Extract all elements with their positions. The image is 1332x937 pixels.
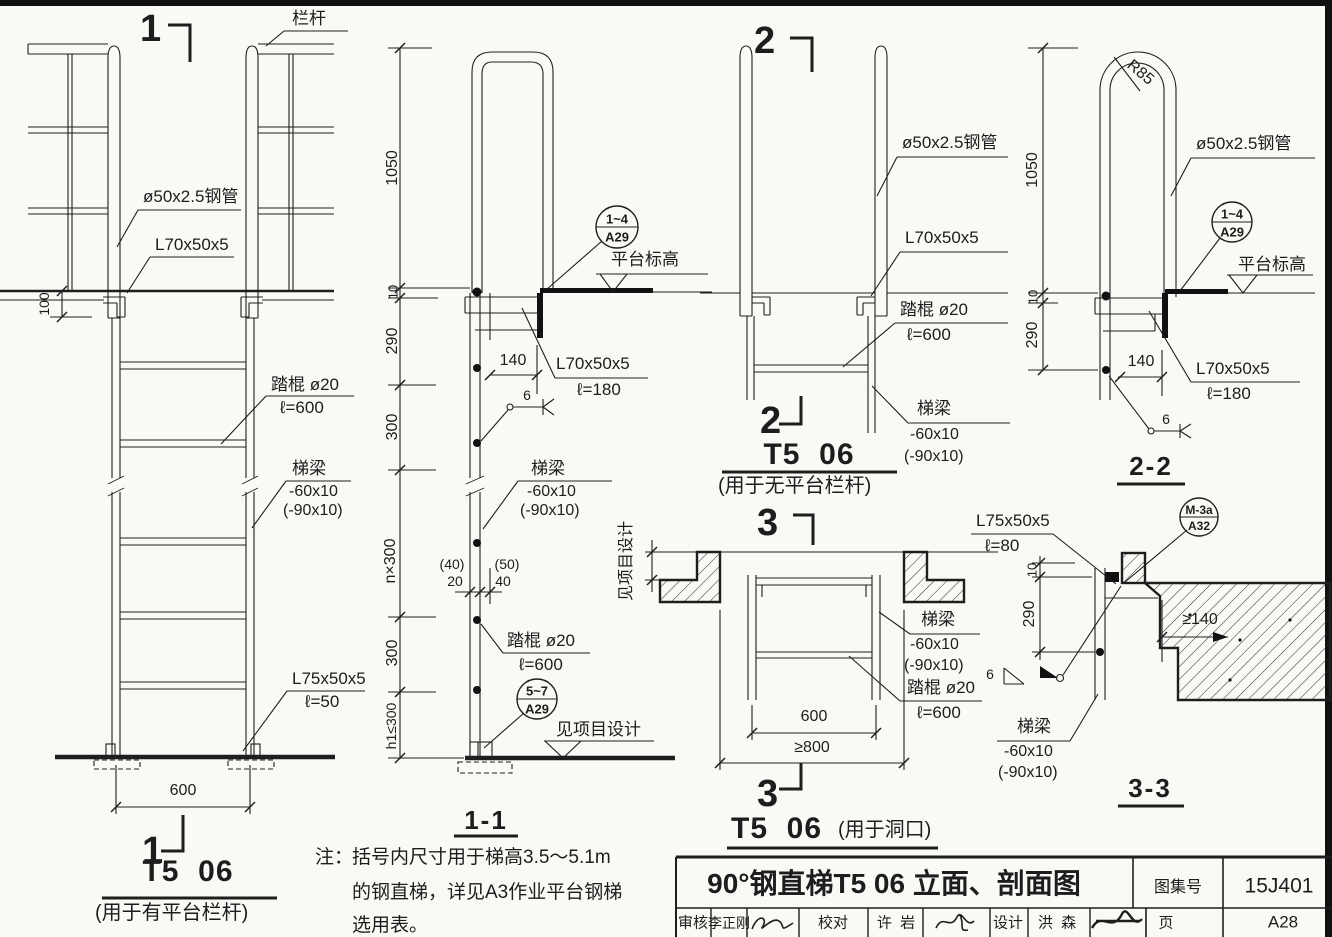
detail-bubble-sheet: A29 — [525, 703, 549, 716]
dim-290: 290 — [385, 328, 401, 355]
checker-signature — [936, 915, 974, 931]
section-marker-3-top: 3 — [757, 504, 778, 542]
platform-level-label: 平台标高 — [611, 251, 679, 268]
stringer-size: -60x10 — [910, 637, 959, 653]
angle-label: L70x50x5 — [155, 236, 229, 253]
sec3-subtitle: (用于洞口) — [838, 820, 931, 840]
weld-size: 6 — [523, 388, 531, 402]
dim-1050: 1050 — [385, 150, 401, 186]
stringer-size: -60x10 — [1004, 744, 1053, 760]
stringer-size: -60x10 — [527, 484, 576, 500]
section-marker-3-bottom: 3 — [757, 775, 778, 813]
elevation-2-linework — [700, 38, 1010, 472]
section-marker-2-top: 2 — [754, 22, 775, 60]
railing-label: 栏杆 — [292, 10, 326, 27]
rung-length: ℓ=600 — [907, 326, 951, 343]
dim-600: 600 — [801, 709, 828, 725]
pipe-label: ø50x2.5钢管 — [902, 134, 997, 151]
detail-bubble-sheet: A29 — [605, 231, 629, 244]
sheet-title: 90°钢直梯T5 06 立面、剖面图 — [707, 870, 1081, 898]
project-level-label: 见项目设计 — [556, 721, 641, 738]
stringer-size: -60x10 — [289, 484, 338, 500]
page-number: A28 — [1268, 914, 1298, 931]
design-label: 设计 — [993, 916, 1023, 931]
stringer-size-alt: (-90x10) — [998, 765, 1058, 781]
section-marker-2-bottom: 2 — [760, 402, 781, 440]
stringer-size-alt: (-90x10) — [520, 503, 580, 519]
detail-3-3-title: 3-3 — [1128, 775, 1172, 801]
dim-140: 140 — [1128, 354, 1155, 370]
section-2-2-title: 2-2 — [1129, 453, 1173, 479]
dim-h1: h1≤300 — [384, 703, 398, 750]
section-marker-1-top: 1 — [140, 10, 161, 48]
note-line-1: 括号内尺寸用于梯高3.5～5.1m — [352, 848, 611, 867]
dim-10: 10 — [387, 285, 400, 299]
angle-length: ℓ=180 — [577, 381, 621, 398]
weld-size: 6 — [986, 667, 994, 681]
base-angle-label: L75x50x5 — [292, 670, 366, 687]
elev1-title: T5 06 — [142, 857, 233, 887]
stringer-size-alt: (-90x10) — [283, 503, 343, 519]
dim-20: 20 — [447, 574, 463, 588]
detail-bubble-num: M-3a — [1185, 504, 1212, 516]
dim-140: ≥140 — [1182, 612, 1217, 628]
dim-1050: 1050 — [1025, 152, 1041, 188]
section-1-1-linework — [388, 43, 712, 836]
dim-600: 600 — [170, 783, 197, 799]
rung-label: 踏棍 ø20 — [507, 632, 575, 649]
note-prefix: 注： — [315, 848, 353, 867]
check-label: 校对 — [818, 916, 848, 931]
note-line-3: 选用表。 — [352, 916, 428, 935]
stringer-size-alt: (-90x10) — [904, 449, 964, 465]
dim-290: 290 — [1022, 601, 1038, 628]
angle-label: L70x50x5 — [556, 355, 630, 372]
elev2-subtitle: (用于无平台栏杆) — [718, 476, 871, 496]
dim-40: 40 — [495, 574, 511, 588]
dim-10: 10 — [1027, 290, 1040, 304]
stringer-label: 梯梁 — [292, 460, 326, 477]
dim-100: 100 — [37, 292, 51, 315]
detail-bubble-sheet: A29 — [1220, 226, 1244, 239]
angle-label: L70x50x5 — [905, 229, 979, 246]
rung-label: 踏棍 ø20 — [271, 376, 339, 393]
angle-label: L70x50x5 — [1196, 360, 1270, 377]
stringer-label: 梯梁 — [921, 611, 955, 628]
section-1-1-title: 1-1 — [464, 807, 508, 833]
dim-10: 10 — [1026, 563, 1039, 577]
detail-bubble-sheet: A32 — [1188, 520, 1210, 532]
page-label: 页 — [1158, 916, 1173, 931]
dim-140: 140 — [500, 353, 527, 369]
dim-50p: (50) — [495, 557, 520, 571]
base-angle-length: ℓ=50 — [305, 693, 339, 710]
dim-300b: 300 — [385, 640, 401, 667]
stringer-label: 梯梁 — [531, 460, 565, 477]
note-line-2: 的钢直梯，详见A3作业平台钢梯 — [352, 883, 622, 902]
atlas-number: 15J401 — [1245, 876, 1314, 897]
rung-label: 踏棍 ø20 — [900, 301, 968, 318]
pipe-label: ø50x2.5钢管 — [143, 188, 238, 205]
reviewer-signature — [752, 918, 793, 929]
checker-name: 许 岩 — [877, 916, 915, 931]
stringer-size-alt: (-90x10) — [904, 658, 964, 674]
stringer-size: -60x10 — [910, 427, 959, 443]
sec3-title: T5 06 — [731, 814, 822, 844]
detail-bubble-num: 1~4 — [1221, 208, 1243, 221]
rung-length: ℓ=600 — [917, 704, 961, 721]
angle-length: ℓ=80 — [985, 537, 1019, 554]
designer-name: 洪 森 — [1038, 916, 1076, 931]
project-design-label: 见项目设计 — [619, 521, 635, 601]
designer-signature — [1092, 911, 1142, 928]
rung-length: ℓ=600 — [280, 399, 324, 416]
dim-800: ≥800 — [794, 740, 829, 756]
pipe-label: ø50x2.5钢管 — [1196, 135, 1291, 152]
platform-level-label: 平台标高 — [1238, 256, 1306, 273]
review-label: 审核 — [678, 916, 708, 931]
atlas-number-label: 图集号 — [1154, 880, 1202, 896]
angle-label: L75x50x5 — [976, 512, 1050, 529]
reviewer-name: 李正刚 — [708, 916, 750, 930]
detail-bubble-num: 5~7 — [526, 685, 548, 698]
dim-300a: 300 — [385, 414, 401, 441]
dim-290: 290 — [1025, 322, 1041, 349]
rung-label: 踏棍 ø20 — [907, 679, 975, 696]
dim-n300: n×300 — [383, 539, 399, 584]
elev2-title: T5 06 — [763, 440, 854, 470]
dim-40p: (40) — [440, 557, 465, 571]
weld-size: 6 — [1162, 412, 1170, 426]
angle-length: ℓ=180 — [1207, 385, 1251, 402]
stringer-label: 梯梁 — [1017, 718, 1051, 735]
drawing-page: 栏杆 ø50x2.5钢管 L70x50x5 100 踏棍 ø20 ℓ=600 梯… — [0, 0, 1332, 937]
stringer-label: 梯梁 — [917, 400, 951, 417]
elev1-subtitle: (用于有平台栏杆) — [95, 903, 248, 923]
detail-bubble-num: 1~4 — [606, 213, 628, 226]
rung-length: ℓ=600 — [519, 656, 563, 673]
